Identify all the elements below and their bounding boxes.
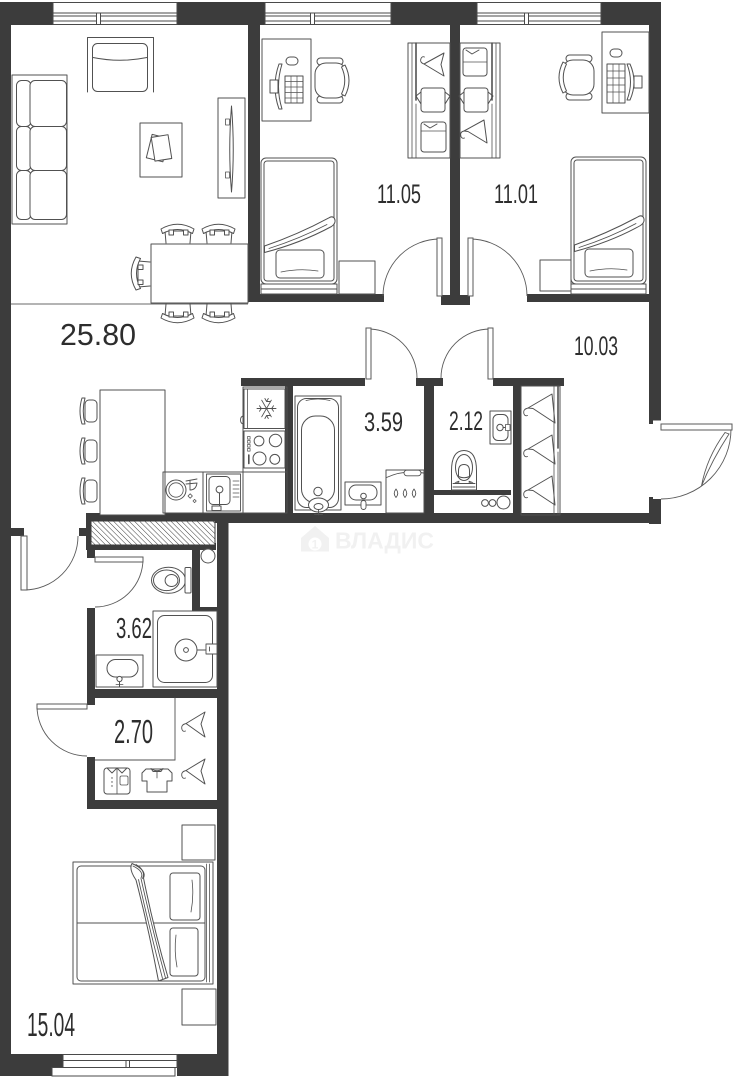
svg-text:2.70: 2.70 — [114, 713, 153, 750]
svg-text:1: 1 — [312, 538, 319, 552]
svg-text:ВЛАДИС: ВЛАДИС — [335, 528, 434, 554]
svg-text:2.12: 2.12 — [449, 406, 483, 436]
svg-text:10.03: 10.03 — [574, 331, 618, 361]
svg-text:3.62: 3.62 — [116, 613, 152, 645]
svg-text:11.01: 11.01 — [494, 179, 538, 209]
svg-text:15.04: 15.04 — [27, 1006, 75, 1043]
svg-text:11.05: 11.05 — [377, 179, 421, 209]
svg-text:3.59: 3.59 — [364, 407, 403, 437]
svg-text:25.80: 25.80 — [60, 317, 136, 352]
